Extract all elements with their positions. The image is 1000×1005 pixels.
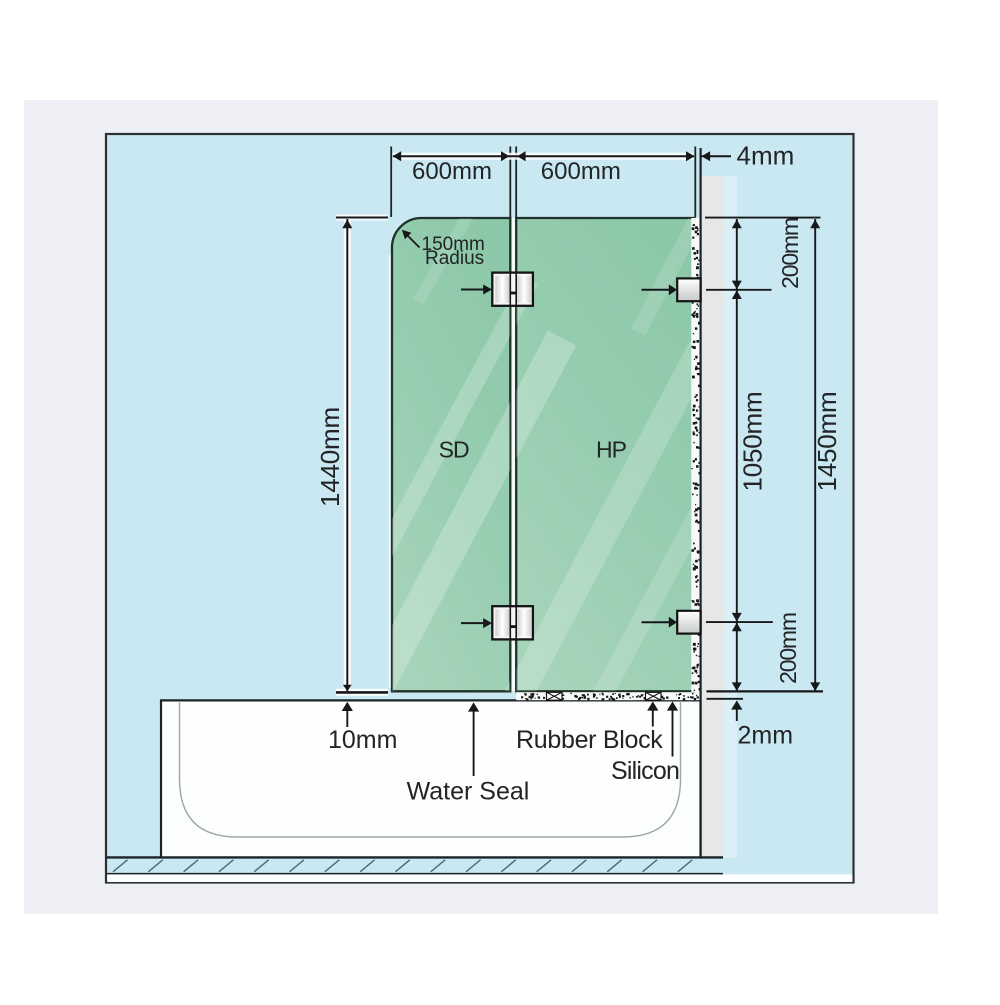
svg-text:200mm: 200mm — [775, 613, 801, 684]
svg-text:200mm: 200mm — [777, 218, 803, 289]
svg-text:Silicon: Silicon — [611, 757, 679, 785]
svg-text:600mm: 600mm — [541, 158, 621, 185]
svg-text:4mm: 4mm — [737, 141, 795, 171]
svg-text:Radius: Radius — [425, 248, 484, 269]
svg-text:1440mm: 1440mm — [315, 407, 345, 507]
svg-text:SD: SD — [439, 436, 469, 462]
svg-text:10mm: 10mm — [328, 726, 397, 754]
svg-text:600mm: 600mm — [412, 158, 492, 185]
svg-text:1450mm: 1450mm — [812, 392, 842, 492]
svg-text:1050mm: 1050mm — [738, 392, 768, 492]
svg-text:Rubber Block: Rubber Block — [516, 726, 663, 754]
svg-text:2mm: 2mm — [738, 722, 794, 750]
svg-text:Water Seal: Water Seal — [407, 778, 530, 806]
svg-text:HP: HP — [596, 436, 627, 462]
